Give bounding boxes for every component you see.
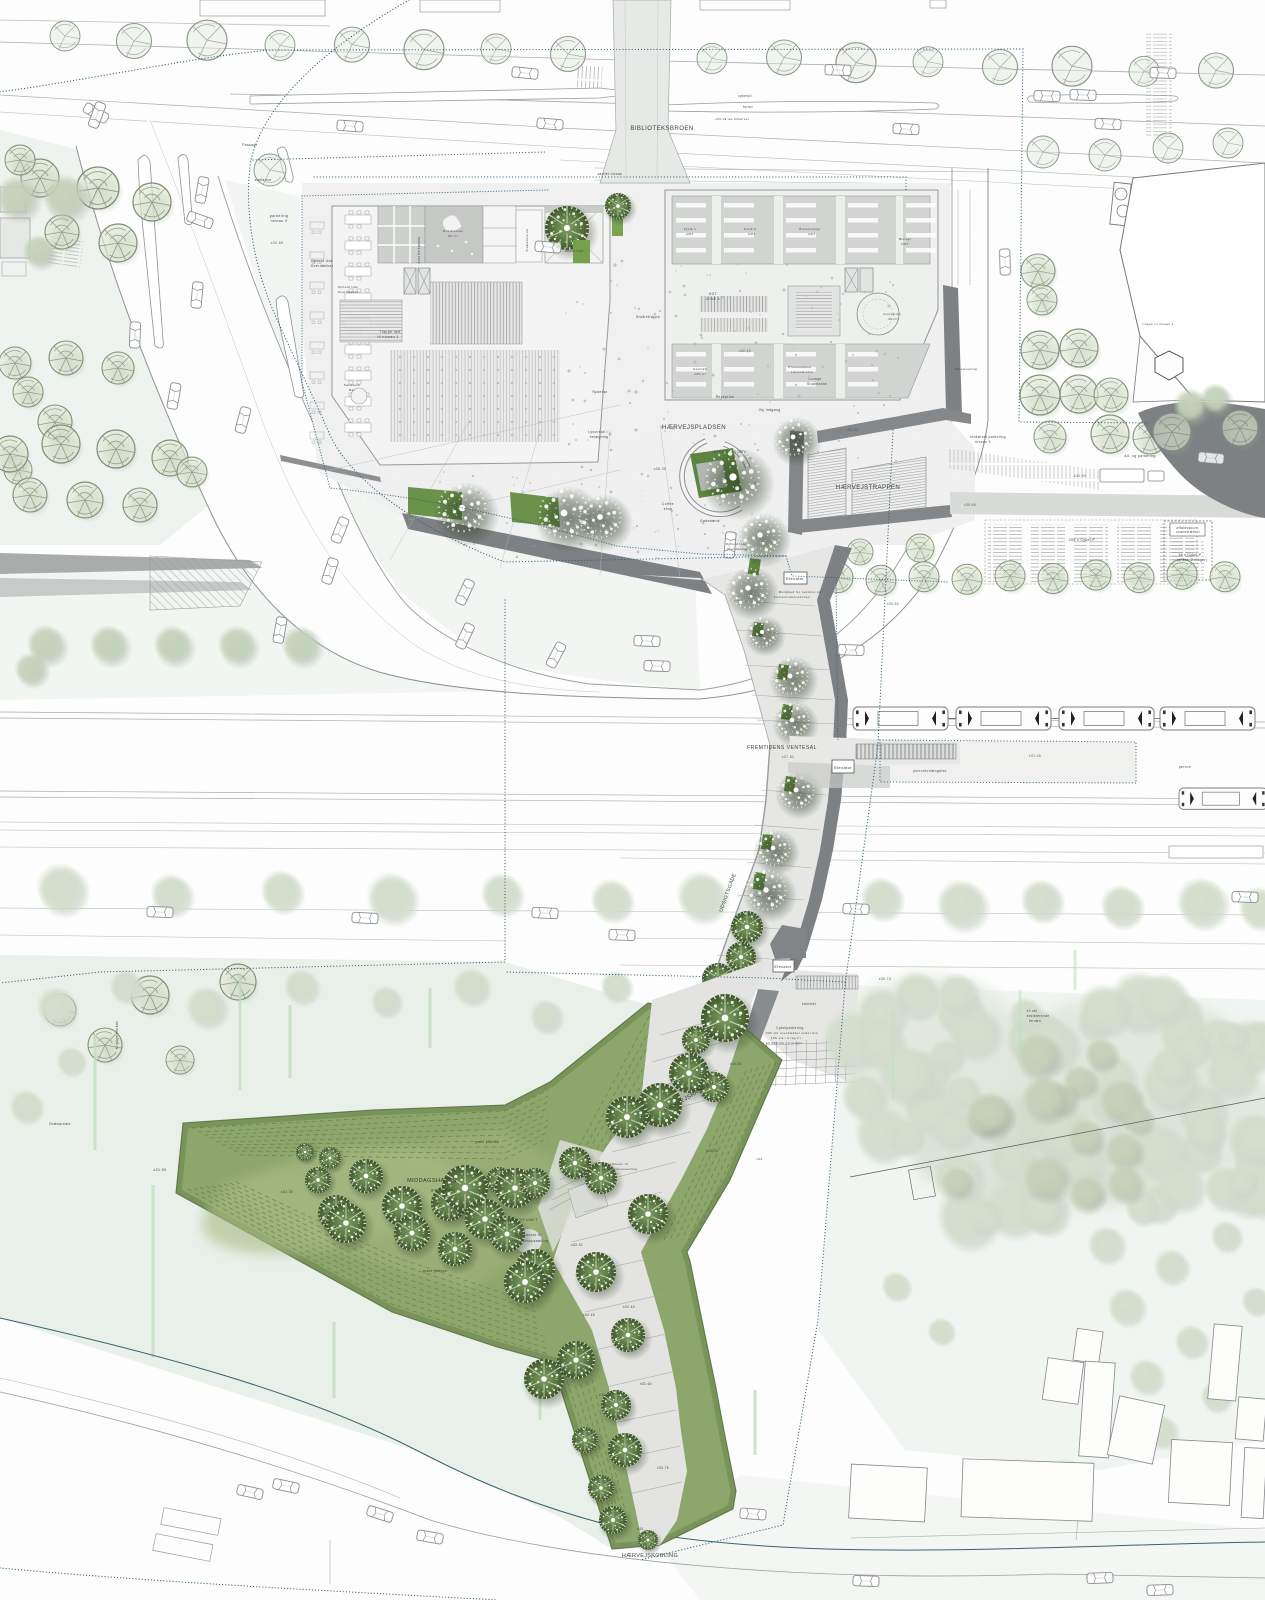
svg-text:x30.65: x30.65 — [964, 503, 976, 507]
svg-text:eksisterende: eksisterende — [1027, 1014, 1050, 1018]
svg-text:HÆRVEJSKOBLING: HÆRVEJSKOBLING — [622, 1553, 678, 1559]
svg-text:svanemærket: svanemærket — [1176, 530, 1200, 534]
svg-text:Spejlbassin til: Spejlbassin til — [515, 1233, 542, 1237]
svg-text:Fysik 2: Fysik 2 — [744, 227, 756, 231]
svg-text:40 stk: 40 stk — [1027, 1009, 1038, 1013]
svg-text:HOT: HOT — [748, 232, 756, 236]
svg-text:x34.05: x34.05 — [706, 1149, 718, 1153]
svg-text:FREMTIDENS VENTESAL: FREMTIDENS VENTESAL — [747, 745, 817, 751]
svg-text:Toeftbesin til: Toeftbesin til — [606, 1162, 628, 1166]
svg-text:Bioteknologi: Bioteknologi — [799, 227, 820, 231]
svg-text:Fysik 1: Fysik 1 — [684, 227, 696, 231]
svg-text:Studiecentrum: Studiecentrum — [525, 228, 529, 252]
svg-text:Ophold Ude: Ophold Ude — [726, 542, 747, 546]
svg-text:x30.63: x30.63 — [846, 428, 858, 432]
svg-text:Ophold Ude: Ophold Ude — [338, 285, 359, 289]
svg-text:Biologi: Biologi — [899, 237, 911, 241]
svg-text:300 stk overdækket under bro: 300 stk overdækket under bro — [766, 1031, 818, 1035]
svg-text:Overdækket: Overdækket — [338, 290, 359, 294]
svg-text:x32.43: x32.43 — [739, 349, 751, 353]
svg-text:niveau 0: niveau 0 — [975, 440, 991, 444]
svg-text:Krigagerområde: Krigagerområde — [115, 1021, 119, 1049]
svg-text:Læreværelse: Læreværelse — [791, 370, 813, 374]
svg-text:Ny indgang: Ny indgang — [759, 408, 780, 412]
svg-text:Mulighed for rodzone på: Mulighed for rodzone på — [779, 590, 822, 594]
svg-text:x36.05: x36.05 — [654, 467, 667, 471]
svg-text:208 x Cykel-P: 208 x Cykel-P — [1069, 538, 1096, 542]
svg-text:x31.90: x31.90 — [1074, 474, 1086, 478]
svg-text:100 stk i 2 lag fri: 100 stk i 2 lag fri — [771, 1036, 801, 1040]
svg-text:Gadebænk: Gadebænk — [700, 519, 720, 523]
svg-text:Cykelparkering: Cykelparkering — [776, 1026, 804, 1030]
svg-text:x31.80: x31.80 — [599, 1393, 611, 1397]
svg-text:Anretterkøkken: Anretterkøkken — [417, 236, 421, 263]
svg-text:grønt plateau: grønt plateau — [475, 1140, 499, 1144]
svg-text:Rudebar: Rudebar — [592, 390, 608, 394]
svg-text:HOT: HOT — [709, 292, 717, 296]
svg-text:til niveau 1: til niveau 1 — [377, 335, 398, 339]
svg-text:x34.: x34. — [756, 1157, 763, 1161]
svg-text:Elevator: Elevator — [834, 765, 852, 770]
svg-text:Græsareale: Græsareale — [49, 1122, 71, 1126]
svg-text:regnvandsopsamling: regnvandsopsamling — [510, 1239, 549, 1243]
svg-text:støttemur: støttemur — [254, 178, 272, 182]
svg-text:Åbent ned: Åbent ned — [565, 248, 583, 253]
svg-text:fortov: fortov — [743, 105, 753, 109]
svg-text:x37.81: x37.81 — [782, 755, 795, 759]
svg-text:UDSIGTSPUNKT: UDSIGTSPUNKT — [502, 1217, 538, 1222]
svg-text:Studiezone: Studiezone — [807, 382, 827, 386]
svg-text:niveau 0: niveau 0 — [271, 219, 288, 223]
svg-text:BIBLIOTEKSBROEN: BIBLIOTEKSBROEN — [630, 125, 693, 132]
svg-text:30 m²: 30 m² — [888, 317, 898, 321]
svg-text:x33.30: x33.30 — [571, 1243, 583, 1247]
svg-text:parkering: parkering — [270, 214, 289, 218]
svg-text:HOT: HOT — [901, 242, 909, 246]
svg-text:grønt plateau: grønt plateau — [431, 1188, 455, 1192]
svg-text:HÆRVEJSTRAPPEN: HÆRVEJSTRAPPEN — [836, 484, 900, 491]
svg-text:HOT: HOT — [808, 232, 816, 236]
svg-text:x31.46: x31.46 — [1029, 754, 1041, 758]
svg-text:Varelevering: Varelevering — [955, 367, 977, 371]
svg-text:shop: shop — [664, 507, 673, 511]
svg-text:x30.74: x30.74 — [879, 977, 891, 981]
svg-text:belægning: belægning — [590, 435, 609, 439]
svg-text:Studietrappe: Studietrappe — [636, 315, 660, 319]
svg-text:Overdækket: Overdækket — [311, 264, 333, 268]
svg-text:x31.60: x31.60 — [640, 1382, 652, 1386]
svg-text:All- og parkering: All- og parkering — [1124, 454, 1156, 458]
svg-text:samlet niveau: samlet niveau — [598, 172, 623, 176]
svg-text:Sandwich: Sandwich — [344, 383, 361, 387]
svg-text:regnvandsopsamling: regnvandsopsamling — [603, 1167, 638, 1171]
svg-text:x32.30: x32.30 — [281, 1190, 294, 1194]
svg-text:grønt plateau: grønt plateau — [423, 1269, 447, 1273]
svg-text:Lysvirkail i: Lysvirkail i — [588, 430, 607, 434]
svg-text:x30.75: x30.75 — [657, 1466, 669, 1470]
svg-text:Elevator: Elevator — [774, 965, 791, 969]
svg-text:koncentrationszonen: koncentrationszonen — [774, 595, 810, 599]
svg-text:Trappe ned: Trappe ned — [379, 330, 400, 334]
svg-text:perronforlængelse: perronforlængelse — [913, 769, 947, 773]
svg-text:Passage: Passage — [242, 143, 257, 147]
svg-text:ophold: ophold — [579, 1169, 591, 1173]
svg-text:54 x Cykel-P: 54 x Cykel-P — [1179, 553, 1202, 557]
svg-text:Bar: Bar — [349, 388, 355, 392]
svg-text:trappe til niveau 1: trappe til niveau 1 — [1142, 322, 1173, 326]
svg-text:MIDDAGSHAVEN: MIDDAGSHAVEN — [407, 1178, 457, 1184]
svg-text:Musiklokale: Musiklokale — [443, 229, 464, 233]
svg-text:terræn: terræn — [1029, 1019, 1041, 1023]
svg-text:x32.45: x32.45 — [583, 1313, 595, 1317]
svg-text:Overdækket: Overdækket — [727, 547, 748, 551]
svg-text:Indkørsel parkering: Indkørsel parkering — [970, 435, 1006, 439]
svg-text:Procesudstue: Procesudstue — [788, 365, 811, 369]
svg-text:x30.65: x30.65 — [271, 241, 284, 245]
svg-text:i alt 200 stk i 2 etager: i alt 200 stk i 2 etager — [763, 1041, 802, 1045]
svg-text:80 m²: 80 m² — [448, 234, 458, 238]
svg-text:x31.50: x31.50 — [153, 1168, 166, 1172]
svg-text:Ophold Ude: Ophold Ude — [311, 259, 333, 263]
svg-text:Coffee: Coffee — [662, 502, 674, 506]
svg-text:x33.19 lav bilkørsel: x33.19 lav bilkørsel — [715, 117, 749, 121]
svg-text:HÆRVEJSPLADSEN: HÆRVEJSPLADSEN — [662, 424, 726, 431]
svg-text:cykelsti: cykelsti — [738, 94, 752, 98]
svg-text:(aflåst, 2 etager): (aflåst, 2 etager) — [1177, 558, 1207, 562]
svg-text:125 m²: 125 m² — [694, 372, 706, 376]
svg-text:perron: perron — [1179, 765, 1191, 769]
svg-text:x30.: x30. — [637, 1527, 645, 1531]
svg-text:x30.60: x30.60 — [887, 602, 899, 606]
svg-text:SCENE: SCENE — [581, 1174, 594, 1178]
svg-text:x34.80: x34.80 — [730, 1062, 742, 1066]
svg-text:stenmel: stenmel — [802, 1002, 816, 1006]
svg-text:Lounge: Lounge — [808, 377, 821, 381]
svg-text:Reception: Reception — [716, 395, 735, 399]
svg-text:STORE - TORV: STORE - TORV — [714, 449, 747, 454]
svg-text:HOT: HOT — [686, 232, 694, 236]
svg-text:Innovation: Innovation — [883, 312, 901, 316]
svg-text:x32.40: x32.40 — [623, 1305, 635, 1309]
svg-text:ZONE A: ZONE A — [706, 297, 721, 301]
svg-text:Kemilab: Kemilab — [693, 367, 707, 371]
